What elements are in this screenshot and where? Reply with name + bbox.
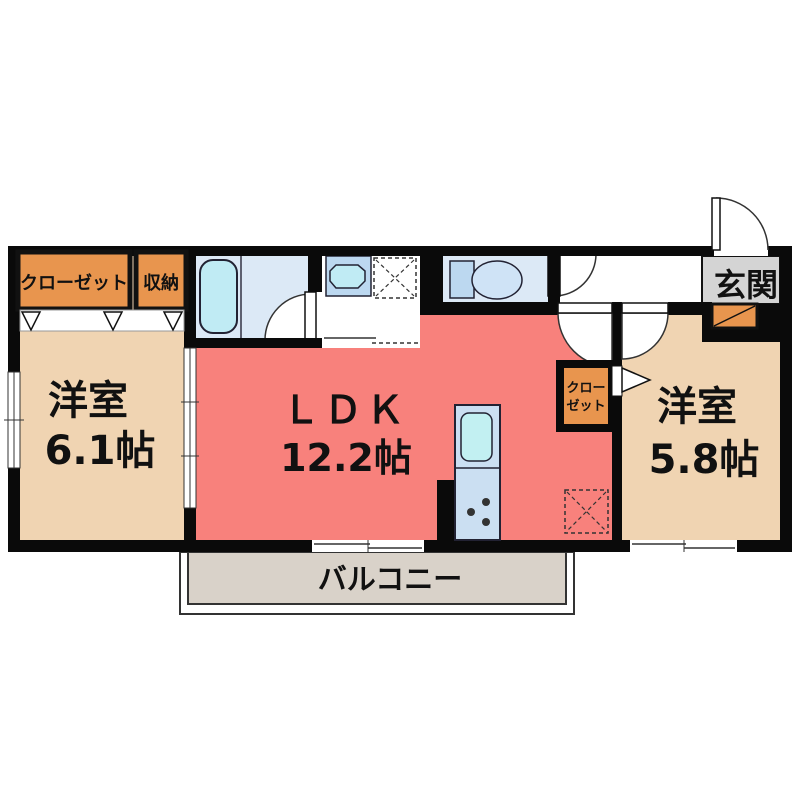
room-left-name: 洋室 xyxy=(48,378,128,424)
storage-closet: 収納 xyxy=(136,252,186,309)
wall-segment xyxy=(548,246,560,302)
closet-mid-box xyxy=(564,368,608,424)
wall-segment xyxy=(420,302,560,315)
bathtub-icon xyxy=(200,260,237,333)
room-right-name: 洋室 xyxy=(657,384,737,430)
stove-burner-icon xyxy=(482,498,490,506)
entry-door-opening xyxy=(714,246,768,256)
entry-door-arc xyxy=(716,198,768,250)
wall-segment xyxy=(702,328,757,342)
closet-left: クローゼット xyxy=(18,252,130,309)
hallway xyxy=(548,254,702,302)
toilet-bowl-icon xyxy=(472,261,522,299)
toilet-room xyxy=(443,256,548,302)
closet-door-strip xyxy=(20,310,184,331)
washbasin-sink-icon xyxy=(330,265,365,288)
wall-segment xyxy=(184,338,322,348)
ldk-size: 12.2帖 xyxy=(280,436,412,480)
wall-segment xyxy=(437,480,455,540)
entrance-label: 玄関 xyxy=(714,266,778,304)
kitchen-sink-icon xyxy=(461,413,492,461)
closet-left-label: クローゼット xyxy=(20,272,128,294)
room-left-size: 6.1帖 xyxy=(45,428,156,474)
wall-right xyxy=(780,246,792,552)
washing-machine-space-icon xyxy=(374,258,416,298)
stove-burner-icon xyxy=(482,518,490,526)
balcony: バルコニー xyxy=(180,552,574,614)
washroom xyxy=(322,256,420,334)
stove-burner-icon xyxy=(467,508,475,516)
entry-door xyxy=(712,198,768,256)
closet-mid-label1: クロー xyxy=(566,381,605,396)
floor-plan-image: バルコニー 玄関 xyxy=(0,0,800,800)
closet-mid-door-jamb xyxy=(612,366,622,396)
kitchen xyxy=(455,405,500,540)
ldk-door-leaf xyxy=(558,303,612,313)
right-room-door-leaf xyxy=(622,303,668,313)
bathroom xyxy=(196,256,316,340)
entry-door-leaf xyxy=(712,198,720,250)
washroom-sliding-door xyxy=(322,334,420,348)
wall-segment xyxy=(308,246,322,292)
ldk-name: ＬＤＫ xyxy=(282,388,408,432)
wall-segment xyxy=(184,508,196,540)
entrance: 玄関 xyxy=(702,256,780,304)
balcony-label: バルコニー xyxy=(318,562,462,596)
room-right-size: 5.8帖 xyxy=(649,437,760,483)
floor-plan-svg: バルコニー 玄関 xyxy=(0,0,800,800)
bathroom-door-leaf xyxy=(305,292,316,340)
wall-segment xyxy=(757,304,780,342)
closet-front-doors xyxy=(20,310,184,331)
closet-mid-label2: ゼット xyxy=(566,398,605,414)
toilet-tank-icon xyxy=(450,261,474,298)
shoe-cabinet xyxy=(712,304,757,328)
storage-label: 収納 xyxy=(143,272,179,294)
